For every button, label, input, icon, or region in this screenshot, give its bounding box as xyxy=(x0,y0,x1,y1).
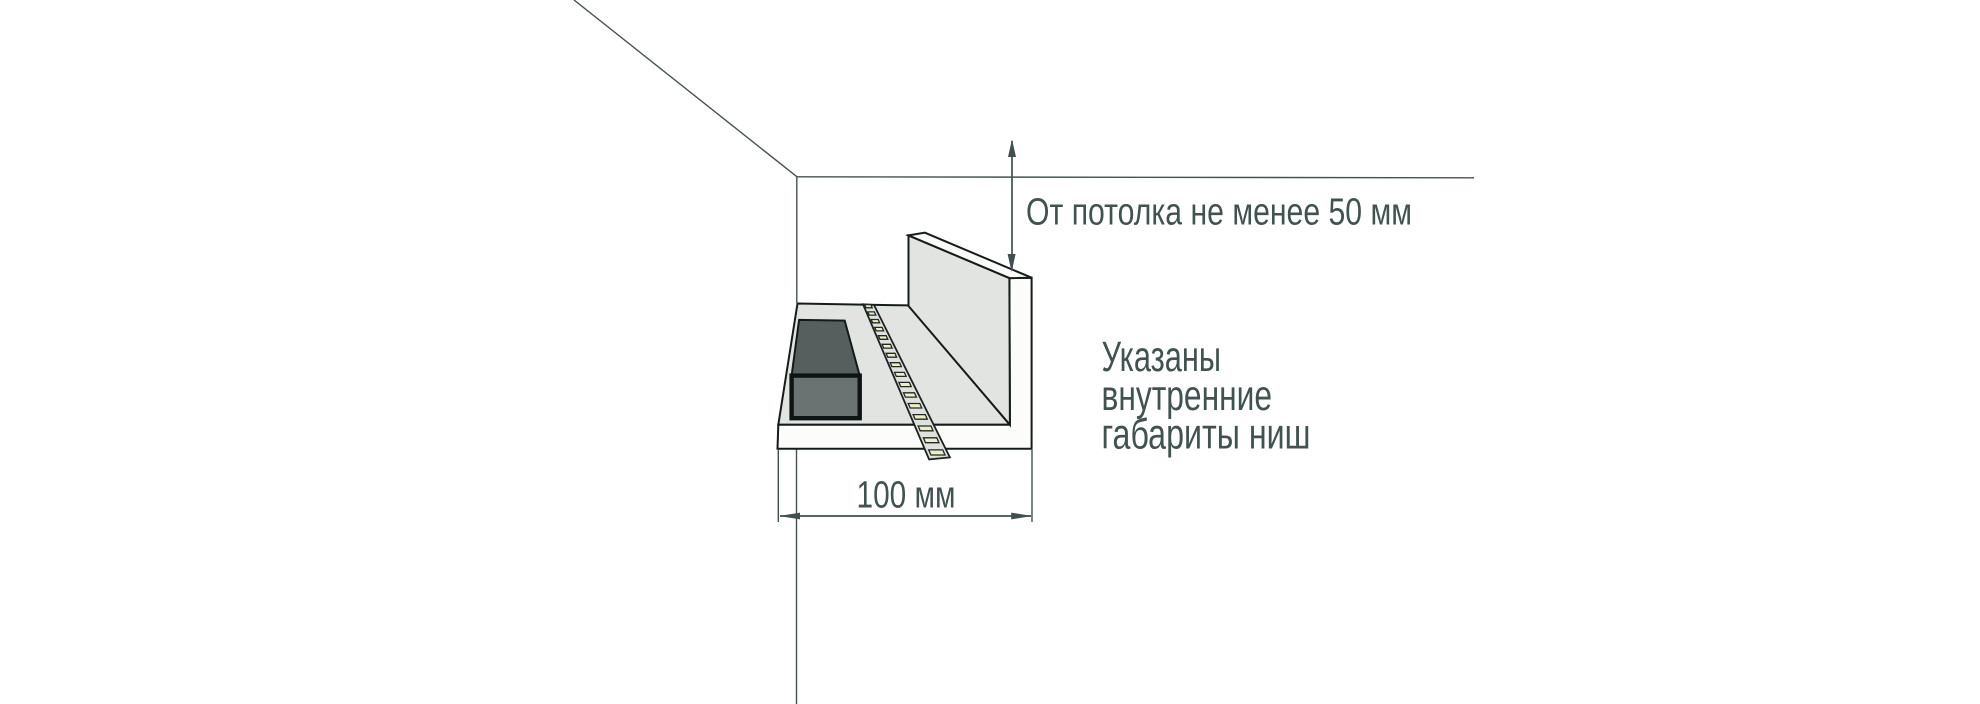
svg-text:От потолка не менее 50 мм: От потолка не менее 50 мм xyxy=(1026,192,1412,234)
svg-text:100 мм: 100 мм xyxy=(857,475,956,517)
svg-text:габариты ниш: габариты ниш xyxy=(1102,412,1311,459)
